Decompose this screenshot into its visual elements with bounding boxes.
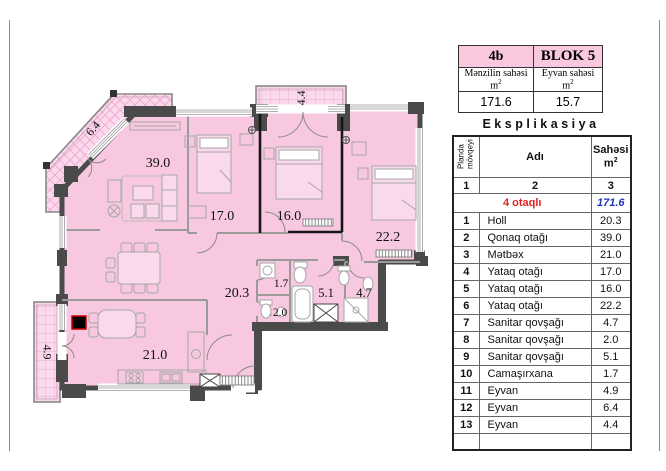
room-label-balcony-left: 4.9	[40, 345, 54, 360]
col-header-area: Sahəsi m2	[591, 136, 631, 178]
vent-shaft-bath	[314, 304, 338, 322]
balcony-area-value: 15.7	[534, 92, 603, 113]
summary-row: 4 otaqlı 171.6	[453, 194, 631, 213]
summary-label: 4 otaqlı	[453, 194, 591, 213]
table-row: 6Yataq otağı22.2	[453, 298, 631, 315]
room-label-wc: 2.0	[273, 307, 288, 319]
table-row: 5Yataq otağı16.0	[453, 281, 631, 298]
apartment-area-value: 171.6	[459, 92, 534, 113]
table-row: 3Mətbəx21.0	[453, 247, 631, 264]
table-row: 7Sanitar qovşağı4.7	[453, 315, 631, 332]
explication-table: Planda mövqeyi Adı Sahəsi m2 1 2 3 4 ota…	[452, 135, 632, 451]
room-label-bath2: 4.7	[356, 286, 372, 300]
room-label-kitchen: 21.0	[143, 348, 168, 363]
empty-row	[453, 434, 631, 451]
block-name: BLOK 5	[534, 46, 603, 68]
washing-machine	[260, 263, 275, 278]
room-label-laundry: 1.7	[274, 278, 289, 290]
room-label-bedroom1: 17.0	[210, 209, 235, 224]
radiator-entry	[220, 376, 254, 385]
table-row: 8Sanitar qovşağı2.0	[453, 332, 631, 349]
info-card: 4b BLOK 5 Mənzilin sahəsi m2 Eyvan sahəs…	[458, 45, 603, 113]
vent-shaft-red	[72, 316, 86, 329]
page: 39.0 17.0 16.0 22.2 20.3 1.7 2.0 5.1 4.7…	[0, 0, 666, 471]
room-label-living: 39.0	[146, 156, 171, 171]
apartment-area-label: Mənzilin sahəsi m2	[459, 68, 534, 92]
walls	[54, 102, 428, 401]
room-label-bedroom3: 22.2	[376, 230, 401, 245]
vent-shaft-kitchen	[200, 374, 220, 387]
table-row: 12Eyvan6.4	[453, 400, 631, 417]
summary-value: 171.6	[591, 194, 631, 213]
unit-code: 4b	[459, 46, 534, 68]
table-row: 11Eyvan4.9	[453, 383, 631, 400]
col-header-position: Planda mövqeyi	[453, 136, 479, 178]
table-row: 10Camaşırxana1.7	[453, 366, 631, 383]
table-row: 13Eyvan4.4	[453, 417, 631, 434]
room-label-bedroom2: 16.0	[277, 209, 302, 224]
table-row: 1Holl20.3	[453, 213, 631, 230]
room-label-hall: 20.3	[225, 286, 250, 301]
col-header-name: Adı	[479, 136, 591, 178]
explication-title: Eksplikasiya	[452, 117, 630, 131]
table-row: 2Qonaq otağı39.0	[453, 230, 631, 247]
room-label-bath1: 5.1	[318, 286, 334, 300]
index-row: 1 2 3	[453, 178, 631, 194]
balcony-area-label: Eyvan sahəsi m2	[534, 68, 603, 92]
table-row: 9Sanitar qovşağı5.1	[453, 349, 631, 366]
table-row: 4Yataq otağı17.0	[453, 264, 631, 281]
room-label-balcony-top: 4.4	[294, 91, 308, 106]
